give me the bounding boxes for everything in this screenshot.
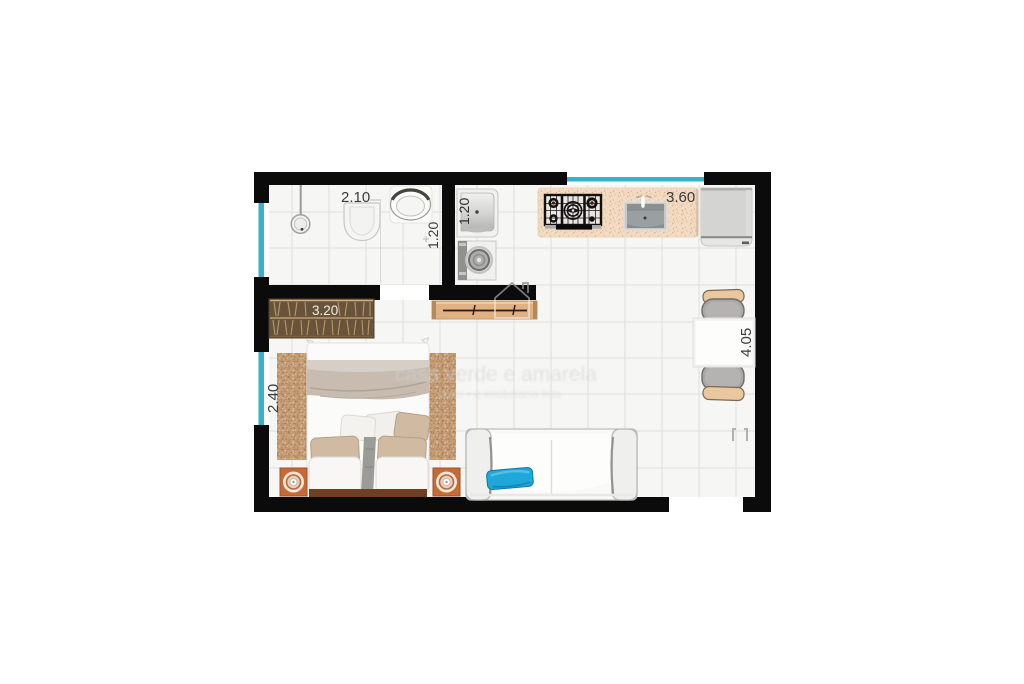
svg-text:3.60: 3.60 bbox=[666, 189, 695, 206]
svg-text:1.20: 1.20 bbox=[456, 198, 472, 225]
svg-text:casa verde e amarela: casa verde e amarela bbox=[395, 363, 597, 386]
svg-text:2.40: 2.40 bbox=[265, 384, 282, 413]
svg-text:4.05: 4.05 bbox=[738, 328, 755, 357]
svg-text:creci • e imobiliaria ltda: creci • e imobiliaria ltda bbox=[438, 387, 561, 401]
svg-text:1.20: 1.20 bbox=[425, 222, 441, 249]
svg-text:3.20: 3.20 bbox=[312, 303, 338, 318]
svg-text:2.10: 2.10 bbox=[341, 189, 370, 206]
